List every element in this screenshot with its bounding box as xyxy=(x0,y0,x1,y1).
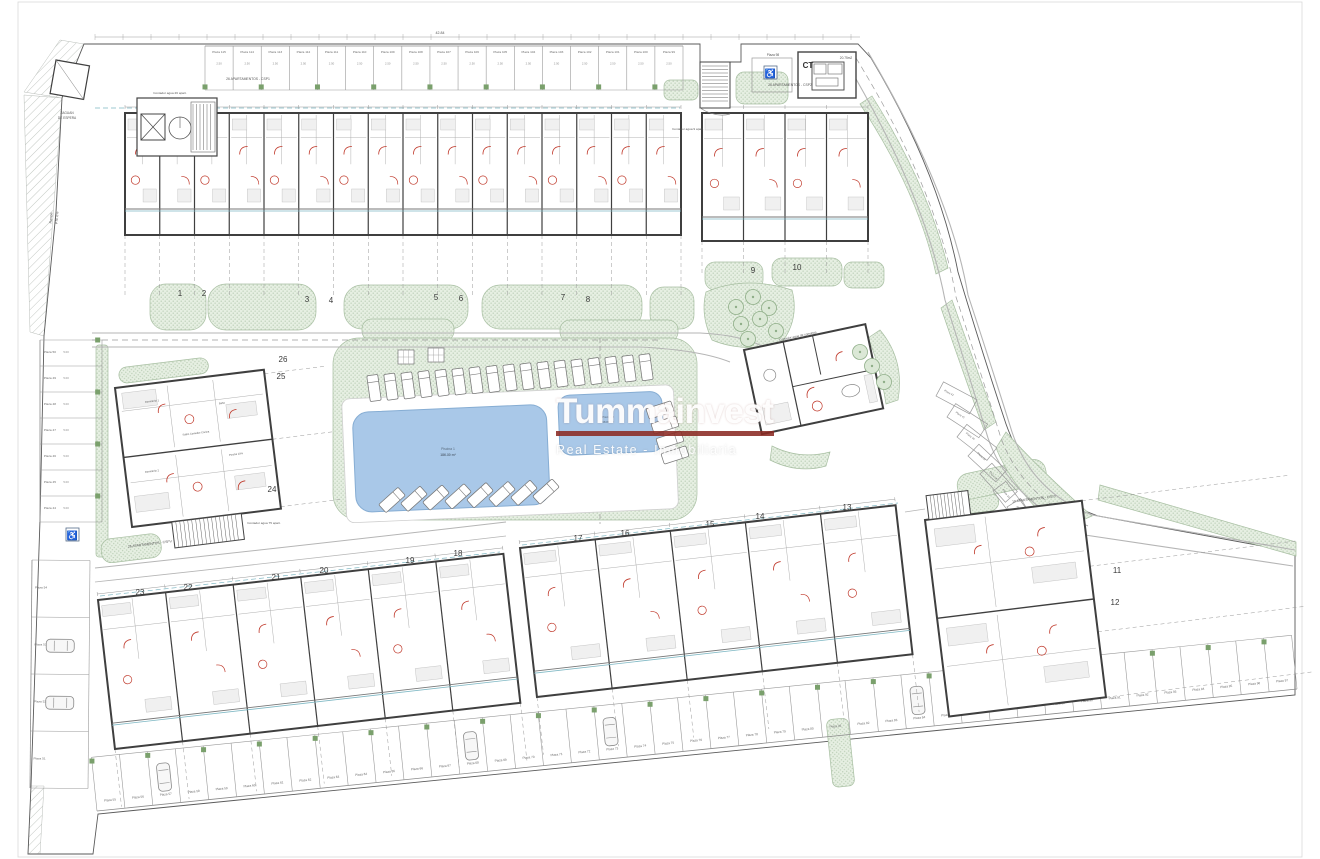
unit-number-6: 6 xyxy=(459,294,464,303)
svg-text:Plaza 76: Plaza 76 xyxy=(690,738,703,743)
unit-number-26: 26 xyxy=(279,355,288,364)
svg-text:Plaza 64: Plaza 64 xyxy=(355,772,368,777)
svg-text:Plaza 59: Plaza 59 xyxy=(215,786,228,791)
wheelchair-icon: ♿ xyxy=(67,530,78,541)
svg-text:2.50: 2.50 xyxy=(441,61,447,65)
svg-text:Plaza 109: Plaza 109 xyxy=(381,50,395,54)
svg-text:5.00: 5.00 xyxy=(63,402,69,406)
svg-text:Plaza 57: Plaza 57 xyxy=(160,792,173,797)
unit-number-13: 13 xyxy=(843,503,852,512)
svg-text:Plaza 113: Plaza 113 xyxy=(269,50,283,54)
svg-text:Plaza 80: Plaza 80 xyxy=(801,726,814,731)
svg-text:Plaza 67: Plaza 67 xyxy=(439,763,452,768)
unit-number-11: 11 xyxy=(1113,566,1122,575)
svg-text:Plaza 66: Plaza 66 xyxy=(411,766,424,771)
svg-text:Plaza 58: Plaza 58 xyxy=(188,789,201,794)
unit-number-15: 15 xyxy=(706,520,715,529)
svg-text:2.50: 2.50 xyxy=(329,61,335,65)
svg-text:Plaza 73: Plaza 73 xyxy=(606,746,619,751)
svg-text:PTE 6%: PTE 6% xyxy=(54,212,59,225)
svg-text:Plaza 75: Plaza 75 xyxy=(662,741,675,746)
car xyxy=(46,639,74,652)
svg-text:Plaza 77: Plaza 77 xyxy=(718,735,731,740)
svg-text:Plaza 97: Plaza 97 xyxy=(1276,678,1289,683)
unit-number-4: 4 xyxy=(329,296,334,305)
unit-number-7: 7 xyxy=(561,293,566,302)
car xyxy=(910,686,926,715)
svg-text:2.50: 2.50 xyxy=(357,61,363,65)
stair-core-west xyxy=(137,98,217,156)
svg-text:2.50: 2.50 xyxy=(469,61,475,65)
svg-text:Plaza 83: Plaza 83 xyxy=(885,718,898,723)
svg-text:5.00: 5.00 xyxy=(63,428,69,432)
svg-text:Plaza 68: Plaza 68 xyxy=(467,760,480,765)
dimension-chain-top xyxy=(95,34,860,40)
svg-text:Plaza 98: Plaza 98 xyxy=(767,53,780,57)
svg-text:Plaza 47: Plaza 47 xyxy=(44,428,56,432)
svg-text:Plaza 74: Plaza 74 xyxy=(634,743,647,748)
unit-number-2: 2 xyxy=(202,289,207,298)
svg-text:Plaza 48: Plaza 48 xyxy=(44,402,56,406)
svg-text:20.75m2: 20.75m2 xyxy=(840,56,853,60)
svg-text:Piscina 2: Piscina 2 xyxy=(602,415,614,419)
parking-row-top: Plaza 1152.50Plaza 1142.50Plaza 1132.50P… xyxy=(203,46,684,90)
svg-text:2.50: 2.50 xyxy=(526,61,532,65)
svg-text:Plaza 105: Plaza 105 xyxy=(493,50,507,54)
svg-text:Contador agua 9 apart.: Contador agua 9 apart. xyxy=(672,127,704,131)
svg-text:Plaza 96: Plaza 96 xyxy=(1248,681,1261,686)
svg-text:Contador agua 26 apart.: Contador agua 26 apart. xyxy=(153,91,187,95)
pool-table xyxy=(398,350,414,364)
svg-text:Plaza 101: Plaza 101 xyxy=(606,50,620,54)
parking-row-lower: Plaza 54Plaza 53Plaza 52Plaza 51 xyxy=(30,560,90,789)
svg-text:Plaza 79: Plaza 79 xyxy=(774,729,787,734)
svg-text:Plaza 110: Plaza 110 xyxy=(353,50,367,54)
parking-row-left: Plaza 505.00Plaza 495.00Plaza 485.00Plaz… xyxy=(40,338,102,523)
svg-text:Plaza 52: Plaza 52 xyxy=(34,700,46,704)
svg-text:Plaza 104: Plaza 104 xyxy=(521,50,535,54)
unit-number-21: 21 xyxy=(272,573,281,582)
svg-text:2.50: 2.50 xyxy=(385,61,391,65)
svg-text:ZAGUAN: ZAGUAN xyxy=(60,111,74,115)
car xyxy=(463,731,479,760)
svg-text:Plaza 102: Plaza 102 xyxy=(578,50,592,54)
unit-number-24: 24 xyxy=(268,485,277,494)
svg-text:Plaza 49: Plaza 49 xyxy=(44,376,56,380)
svg-text:Plaza 39: Plaza 39 xyxy=(976,451,987,461)
svg-text:Plaza 41: Plaza 41 xyxy=(955,410,966,419)
unit-number-17: 17 xyxy=(574,534,583,543)
svg-text:2.50: 2.50 xyxy=(498,61,504,65)
unit-number-18: 18 xyxy=(454,549,463,558)
svg-text:Plaza 63: Plaza 63 xyxy=(327,775,340,780)
svg-text:2.50: 2.50 xyxy=(413,61,419,65)
svg-text:5.00: 5.00 xyxy=(63,454,69,458)
unit-number-8: 8 xyxy=(586,295,591,304)
svg-text:2.50: 2.50 xyxy=(666,61,672,65)
unit-number-19: 19 xyxy=(406,556,415,565)
svg-text:38.80 m²: 38.80 m² xyxy=(602,420,613,424)
svg-text:Piscina 1: Piscina 1 xyxy=(441,447,455,451)
unit-number-1: 1 xyxy=(178,289,183,298)
svg-text:Plaza 71: Plaza 71 xyxy=(550,752,563,757)
svg-text:2.50: 2.50 xyxy=(610,61,616,65)
svg-text:Plaza 112: Plaza 112 xyxy=(297,50,311,54)
svg-text:2.50: 2.50 xyxy=(301,61,307,65)
unit-number-14: 14 xyxy=(756,512,765,521)
svg-text:2.50: 2.50 xyxy=(554,61,560,65)
svg-text:Plaza 92: Plaza 92 xyxy=(1136,692,1149,697)
svg-text:2.50: 2.50 xyxy=(582,61,588,65)
unit-number-20: 20 xyxy=(320,566,329,575)
svg-text:2.50: 2.50 xyxy=(216,61,222,65)
svg-text:Plaza 82: Plaza 82 xyxy=(857,721,870,726)
svg-text:Plaza 50: Plaza 50 xyxy=(44,350,56,354)
svg-text:Plaza 106: Plaza 106 xyxy=(465,50,479,54)
wheelchair-icon: ♿ xyxy=(765,68,776,79)
svg-text:Plaza 99: Plaza 99 xyxy=(663,50,675,54)
svg-text:2.50: 2.50 xyxy=(273,61,279,65)
svg-text:Contador agua 75 apart.: Contador agua 75 apart. xyxy=(247,521,281,525)
svg-text:5.00: 5.00 xyxy=(63,350,69,354)
unit-number-5: 5 xyxy=(434,293,439,302)
svg-text:Plaza 60: Plaza 60 xyxy=(243,783,256,788)
svg-text:Plaza 42: Plaza 42 xyxy=(943,389,955,398)
svg-text:5.00: 5.00 xyxy=(63,506,69,510)
unit-number-16: 16 xyxy=(621,529,630,538)
unit-number-9: 9 xyxy=(751,266,756,275)
svg-text:Plaza 114: Plaza 114 xyxy=(240,50,254,54)
svg-text:Plaza 93: Plaza 93 xyxy=(1164,690,1177,695)
pool-table xyxy=(428,348,444,362)
site-plan-canvas: Plaza 1152.50Plaza 1142.50Plaza 1132.50P… xyxy=(0,0,1320,859)
svg-text:Plaza 44: Plaza 44 xyxy=(44,506,56,510)
svg-text:Plaza 72: Plaza 72 xyxy=(578,749,591,754)
svg-text:Plaza 94: Plaza 94 xyxy=(1192,687,1205,692)
svg-text:Plaza 53: Plaza 53 xyxy=(35,643,47,647)
car xyxy=(603,717,619,746)
unit-number-23: 23 xyxy=(136,588,145,597)
svg-text:Plaza 70: Plaza 70 xyxy=(522,755,535,760)
svg-text:186.30 m²: 186.30 m² xyxy=(440,453,456,457)
site-plan-svg: Plaza 1152.50Plaza 1142.50Plaza 1132.50P… xyxy=(0,0,1320,859)
svg-text:Plaza 45: Plaza 45 xyxy=(44,480,56,484)
svg-text:Plaza 69: Plaza 69 xyxy=(494,758,507,763)
svg-text:Plaza 65: Plaza 65 xyxy=(383,769,396,774)
svg-text:Plaza 46: Plaza 46 xyxy=(44,454,56,458)
unit-number-3: 3 xyxy=(305,295,310,304)
svg-text:Plaza 51: Plaza 51 xyxy=(34,757,46,761)
svg-text:Baño: Baño xyxy=(219,401,226,406)
svg-text:DE ESPERA: DE ESPERA xyxy=(58,116,77,120)
svg-text:Plaza 61: Plaza 61 xyxy=(271,780,284,785)
svg-text:Plaza 103: Plaza 103 xyxy=(550,50,564,54)
svg-text:Plaza 62: Plaza 62 xyxy=(299,778,312,783)
unit-number-10: 10 xyxy=(793,263,802,272)
svg-text:Plaza 55: Plaza 55 xyxy=(104,797,117,802)
svg-text:5.00: 5.00 xyxy=(63,480,69,484)
svg-text:Plaza 108: Plaza 108 xyxy=(409,50,423,54)
unit-number-12: 12 xyxy=(1111,598,1120,607)
svg-text:Plaza 78: Plaza 78 xyxy=(746,732,759,737)
svg-text:Plaza 100: Plaza 100 xyxy=(634,50,648,54)
svg-text:2.50: 2.50 xyxy=(638,61,644,65)
building-west xyxy=(115,362,346,553)
svg-text:Plaza 95: Plaza 95 xyxy=(1220,684,1233,689)
svg-text:Plaza 107: Plaza 107 xyxy=(437,50,451,54)
svg-text:Plaza 115: Plaza 115 xyxy=(212,50,226,54)
svg-text:Plaza 56: Plaza 56 xyxy=(132,795,145,800)
car xyxy=(46,696,74,709)
svg-text:Plaza 84: Plaza 84 xyxy=(913,715,926,720)
svg-text:Plaza 54: Plaza 54 xyxy=(35,586,47,590)
svg-text:CT: CT xyxy=(803,61,814,70)
svg-text:Plaza 111: Plaza 111 xyxy=(325,50,339,54)
svg-text:26 APARTAMENTOS - CSP2: 26 APARTAMENTOS - CSP2 xyxy=(768,83,812,87)
building-north-east xyxy=(702,105,868,275)
car xyxy=(156,762,172,791)
svg-text:26 APARTAMENTOS - CSP1: 26 APARTAMENTOS - CSP1 xyxy=(226,77,270,81)
entry-square xyxy=(50,60,89,99)
unit-number-22: 22 xyxy=(184,583,193,592)
svg-text:42.84: 42.84 xyxy=(436,31,445,35)
stair-core-east xyxy=(700,62,730,115)
svg-text:2.50: 2.50 xyxy=(244,61,250,65)
svg-text:5.00: 5.00 xyxy=(63,376,69,380)
unit-number-25: 25 xyxy=(277,372,286,381)
